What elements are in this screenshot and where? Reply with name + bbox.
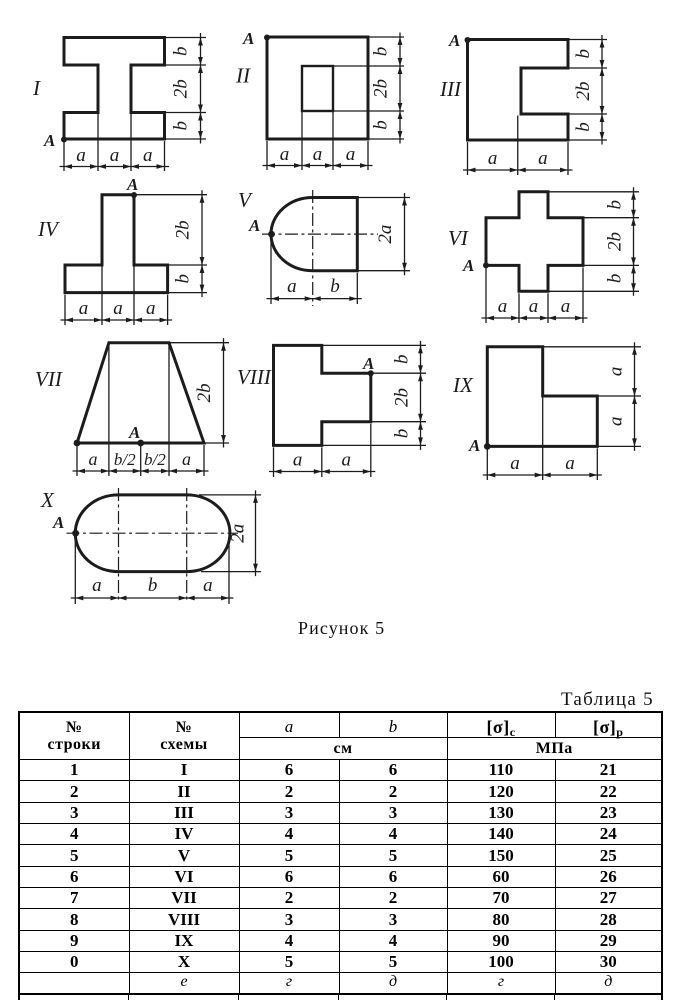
svg-text:a: a xyxy=(113,298,123,319)
svg-text:a: a xyxy=(92,575,102,596)
svg-text:a: a xyxy=(287,276,297,297)
svg-text:a: a xyxy=(510,453,520,474)
svg-text:2b: 2b xyxy=(605,232,626,251)
svg-text:a: a xyxy=(146,298,156,319)
svg-text:II: II xyxy=(235,64,251,88)
svg-text:A: A xyxy=(362,354,374,373)
svg-text:b: b xyxy=(330,276,340,297)
svg-text:2a: 2a xyxy=(228,524,249,543)
svg-text:I: I xyxy=(32,76,41,100)
svg-text:b: b xyxy=(171,47,192,57)
svg-text:A: A xyxy=(43,131,55,150)
svg-text:A: A xyxy=(126,175,138,194)
svg-text:a: a xyxy=(342,450,352,471)
svg-text:b: b xyxy=(573,49,594,59)
svg-text:b/2: b/2 xyxy=(114,450,136,469)
svg-text:a: a xyxy=(346,144,356,165)
svg-text:V: V xyxy=(238,188,253,212)
svg-text:b: b xyxy=(371,47,392,57)
svg-text:a: a xyxy=(79,298,89,319)
svg-text:a: a xyxy=(565,453,575,474)
svg-text:b/2: b/2 xyxy=(144,450,166,469)
svg-text:a: a xyxy=(606,416,627,426)
svg-text:a: a xyxy=(280,144,290,165)
svg-text:A: A xyxy=(468,436,480,455)
svg-text:a: a xyxy=(88,449,97,469)
svg-text:b: b xyxy=(392,429,413,439)
svg-text:A: A xyxy=(462,256,474,275)
svg-text:2b: 2b xyxy=(173,220,194,239)
svg-text:IX: IX xyxy=(452,373,474,397)
svg-text:a: a xyxy=(182,449,191,469)
svg-text:a: a xyxy=(313,144,323,165)
svg-text:2b: 2b xyxy=(392,388,413,407)
svg-text:a: a xyxy=(488,148,498,169)
svg-text:a: a xyxy=(293,450,303,471)
svg-text:2b: 2b xyxy=(194,383,215,402)
svg-text:a: a xyxy=(498,296,508,317)
svg-text:b: b xyxy=(605,200,626,210)
svg-text:a: a xyxy=(110,145,120,166)
svg-text:a: a xyxy=(606,367,627,377)
svg-text:VIII: VIII xyxy=(237,365,272,389)
svg-text:2b: 2b xyxy=(171,79,192,98)
svg-text:a: a xyxy=(561,296,571,317)
svg-text:a: a xyxy=(203,575,213,596)
svg-text:A: A xyxy=(52,513,64,532)
svg-text:VII: VII xyxy=(35,367,63,391)
svg-text:A: A xyxy=(248,216,260,235)
svg-text:a: a xyxy=(143,145,153,166)
svg-text:X: X xyxy=(40,488,55,512)
svg-text:2a: 2a xyxy=(375,225,396,244)
svg-text:b: b xyxy=(371,120,392,130)
svg-text:2b: 2b xyxy=(371,79,392,98)
svg-text:A: A xyxy=(448,31,460,50)
svg-text:2b: 2b xyxy=(573,82,594,101)
svg-text:b: b xyxy=(148,575,158,596)
svg-text:a: a xyxy=(529,296,539,317)
svg-text:b: b xyxy=(171,121,192,131)
svg-text:A: A xyxy=(128,423,140,442)
svg-text:a: a xyxy=(538,148,548,169)
svg-text:a: a xyxy=(76,145,86,166)
svg-text:b: b xyxy=(392,355,413,365)
svg-text:b: b xyxy=(573,122,594,132)
svg-text:b: b xyxy=(173,274,194,284)
svg-text:IV: IV xyxy=(37,217,60,241)
svg-text:VI: VI xyxy=(448,226,469,250)
svg-text:III: III xyxy=(439,77,462,101)
svg-text:b: b xyxy=(605,274,626,284)
svg-text:A: A xyxy=(242,29,254,48)
